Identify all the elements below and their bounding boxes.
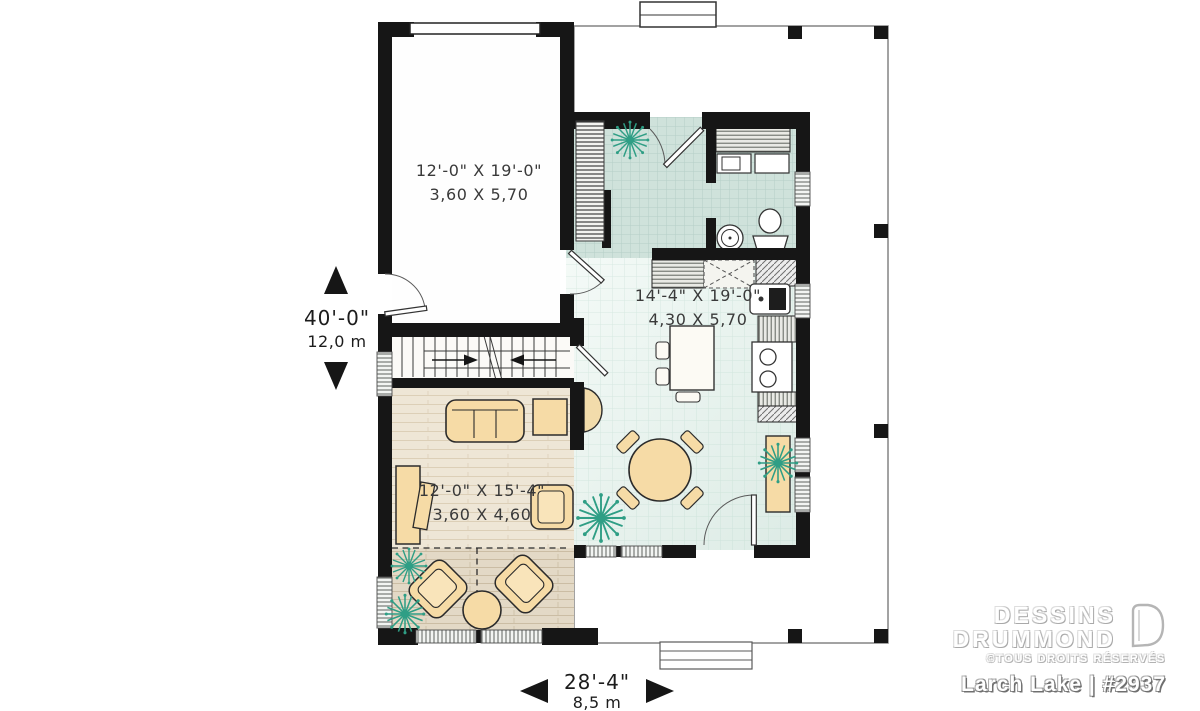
front-steps: [660, 642, 752, 669]
laundry-counter: [716, 126, 790, 152]
plant-dining: [576, 493, 626, 543]
window-dining-right-a: [795, 438, 810, 472]
kitchen-size-imperial: 14'-4" X 19'-0": [635, 286, 761, 305]
width-metric: 8,5 m: [573, 693, 622, 711]
brand-line1: DESSINS: [953, 604, 1116, 627]
width-dimension: 28'-4" 8,5 m: [520, 670, 674, 711]
window-kitchen-sink: [795, 284, 810, 318]
width-imperial: 28'-4": [564, 670, 630, 694]
brand-watermark: DESSINS DRUMMOND ©TOUS DROITS RÉSERVÉS L…: [953, 601, 1166, 697]
garage-size-metric: 3,60 X 5,70: [430, 185, 529, 204]
garage-floor: [392, 37, 560, 323]
dimension-arrow-left: [520, 679, 548, 703]
kitchen-size-metric: 4,30 X 5,70: [649, 310, 748, 329]
rights-notice: ©TOUS DROITS RÉSERVÉS: [953, 653, 1166, 665]
dryer: [755, 154, 789, 173]
window-terrace-front-b: [481, 630, 542, 643]
kitchen-counter-right-a: [758, 316, 797, 342]
washer: [717, 154, 751, 173]
drummond-door-icon: [1124, 601, 1166, 651]
living-size-metric: 3,60 X 4,60: [433, 505, 532, 524]
depth-metric: 12,0 m: [307, 332, 366, 351]
window-stair-left: [377, 352, 392, 396]
window-dining-front-b: [621, 546, 662, 557]
window-dining-right-b: [795, 477, 810, 512]
kitchen-corner-cabinet-dashed: [704, 260, 754, 288]
dimension-arrow-right: [646, 679, 674, 703]
garage-size-imperial: 12'-0" X 19'-0": [416, 161, 542, 180]
window-dining-front-a: [586, 546, 616, 557]
garage-door: [410, 23, 540, 34]
depth-dimension: 40'-0" 12,0 m: [304, 266, 370, 390]
brand-wordmark: DESSINS DRUMMOND: [953, 604, 1116, 651]
stove: [752, 342, 792, 392]
depth-imperial: 40'-0": [304, 306, 370, 330]
plant-foyer: [611, 121, 650, 160]
plant-terrace-bottom: [385, 594, 425, 634]
coat-closet: [576, 121, 604, 241]
chimney: [640, 2, 716, 27]
plant-buffet: [758, 443, 798, 483]
plan-name: Larch Lake | #2937: [953, 673, 1166, 697]
dimension-arrow-up: [324, 266, 348, 294]
floor-plan-page: 12'-0" X 19'-0" 3,60 X 5,70 14'-4" X 19'…: [0, 0, 1200, 711]
living-size-imperial: 12'-0" X 15'-4": [419, 481, 545, 500]
brand-line2: DRUMMOND: [953, 628, 1116, 651]
kitchen-counter-top: [652, 260, 704, 288]
sofa: [446, 400, 524, 442]
window-laundry-right: [795, 172, 810, 206]
terrace-round-table: [463, 591, 501, 629]
kitchen-counter-right-b: [758, 392, 797, 406]
kitchen-counter-right-end: [758, 406, 797, 422]
window-terrace-front-a: [416, 630, 476, 643]
side-table: [533, 399, 567, 435]
plant-terrace-top: [391, 548, 428, 585]
dimension-arrow-down: [324, 362, 348, 390]
dining-table-set: [616, 430, 705, 511]
